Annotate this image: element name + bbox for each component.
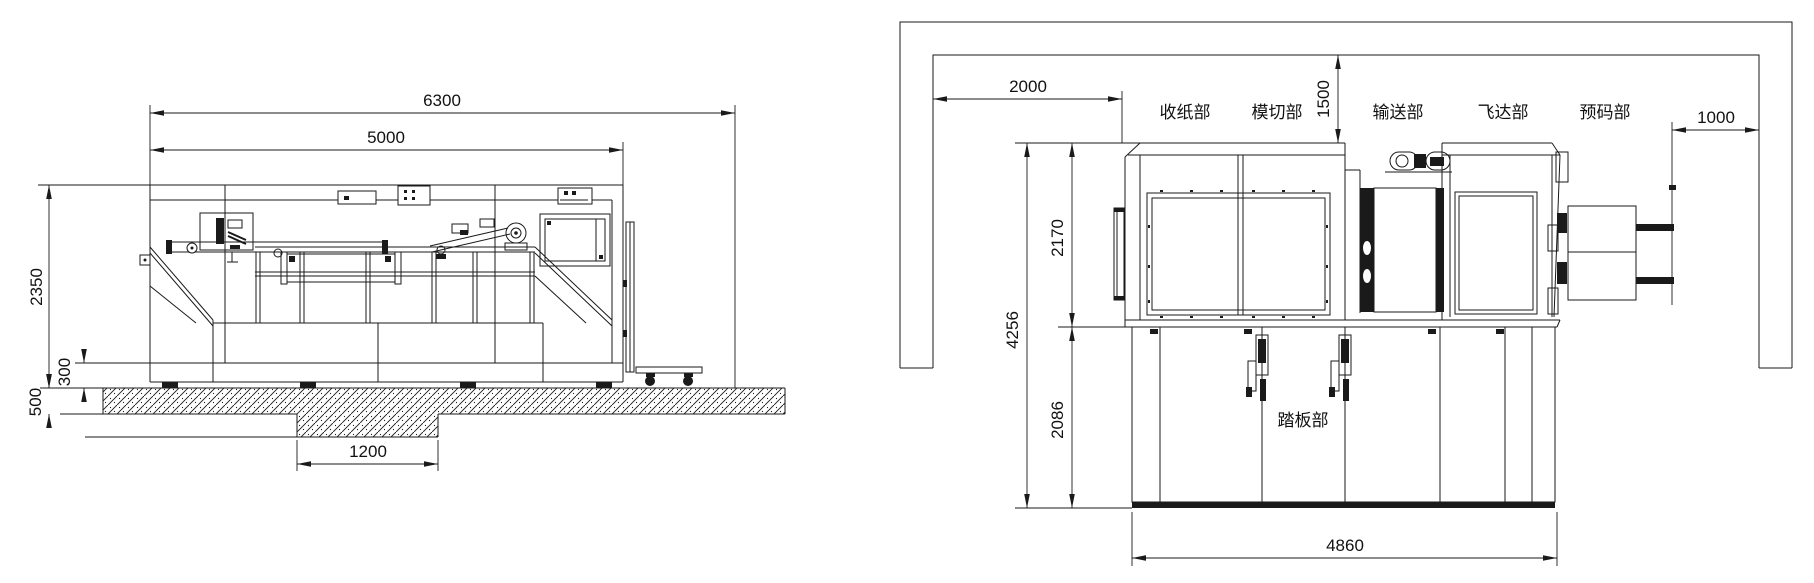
- dim-foundation-depth-label: 500: [26, 388, 45, 416]
- roller-cylinder: [281, 252, 401, 284]
- dim-total-width-label: 6300: [423, 91, 461, 110]
- ground-hatch: [103, 388, 785, 414]
- label-pedal-section: 踏板部: [1278, 411, 1329, 430]
- dim-total-height-label: 4256: [1003, 311, 1022, 349]
- base-plate: [1132, 502, 1555, 508]
- control-box-right: [558, 188, 592, 204]
- dim-total-height-4256: 4256: [1003, 143, 1140, 508]
- right-view-end-elevation: 2000 1500 1000 收纸部 模切部 输送部 飞达部 预码部 4256: [900, 22, 1792, 566]
- label-conveyor-section: 输送部: [1373, 103, 1424, 122]
- dim-top-clearance-label: 1500: [1314, 80, 1333, 118]
- delivery-trolley: [623, 222, 702, 386]
- dim-machine-height-2350: 2350: [27, 185, 150, 388]
- feeder-section: [1442, 143, 1568, 320]
- conveyor-section: [1345, 152, 1452, 313]
- dim-lower-height-2086: 2086: [1048, 327, 1072, 508]
- dim-base-width-4860: 4860: [1132, 512, 1557, 566]
- prestack-comb: [1557, 206, 1674, 300]
- roller-stack: [1374, 188, 1436, 312]
- dim-right-clearance-label: 1000: [1697, 108, 1735, 127]
- machine-side-body: [140, 185, 623, 388]
- safety-fence: [150, 247, 612, 382]
- dim-right-clearance-1000: 1000: [1669, 108, 1759, 305]
- control-box-small: [338, 191, 376, 204]
- pedal-mechanism-1: [1246, 330, 1268, 401]
- machine-installation-drawing: 6300 5000 2350 300 500: [0, 0, 1814, 583]
- drawing-svg: 6300 5000 2350 300 500: [0, 0, 1814, 583]
- dim-pit-width-label: 1200: [349, 442, 387, 461]
- pedal-section-cabinet: 踏板部: [1132, 327, 1555, 508]
- right-tower-window: [540, 214, 610, 266]
- dim-top-clearance-1500: 1500: [1314, 55, 1338, 143]
- label-delivery-section: 收纸部: [1160, 103, 1211, 122]
- pit-hatch: [297, 414, 438, 437]
- label-diecut-section: 模切部: [1252, 103, 1303, 122]
- feed-arm-assembly: [430, 219, 527, 259]
- dim-upper-height-label: 2170: [1048, 219, 1067, 257]
- room-boundary-walls: [900, 22, 1792, 368]
- left-equipment-box: [200, 213, 253, 250]
- dim-machine-height-label: 2350: [27, 268, 46, 306]
- dim-pit-width-1200: 1200: [297, 440, 438, 471]
- control-panel-dots: [398, 186, 430, 205]
- left-view-side-elevation: 6300 5000 2350 300 500: [26, 91, 785, 471]
- dim-base-height-label: 300: [55, 358, 74, 386]
- dim-left-clearance-label: 2000: [1009, 77, 1047, 96]
- label-prestack-section: 预码部: [1580, 103, 1631, 122]
- label-feeder-section: 飞达部: [1478, 103, 1529, 122]
- dim-lower-height-label: 2086: [1048, 401, 1067, 439]
- pedal-mechanism-2: [1329, 330, 1351, 401]
- dim-left-clearance-2000: 2000: [933, 77, 1122, 143]
- section-labels: 收纸部 模切部 输送部 飞达部 预码部: [1160, 103, 1631, 122]
- conveyor-bar: [166, 240, 388, 262]
- machine-end-upper-body: [1114, 143, 1674, 327]
- ground-foundation: [40, 388, 785, 437]
- dim-base-width-label: 4860: [1326, 536, 1364, 555]
- dim-body-width-label: 5000: [367, 128, 405, 147]
